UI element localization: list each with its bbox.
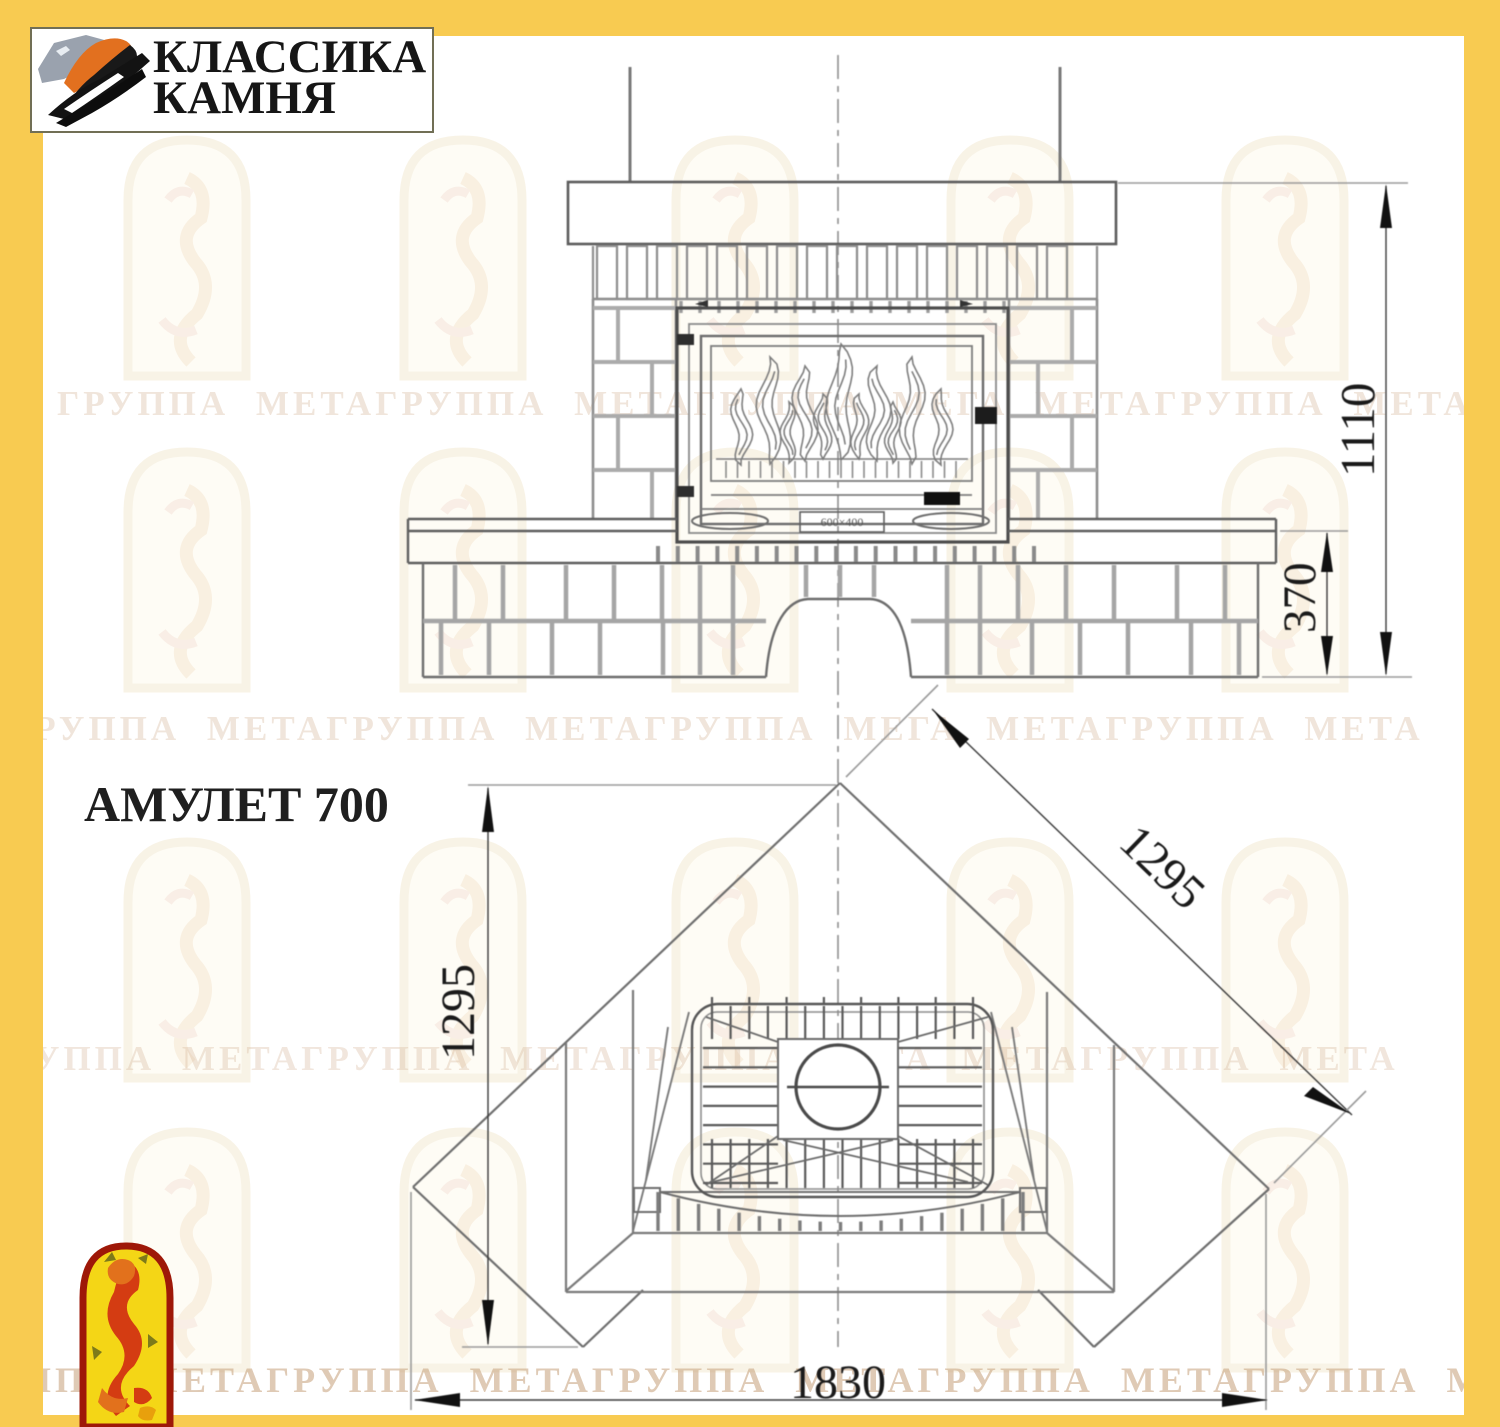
svg-text:1110: 1110	[1330, 383, 1385, 477]
svg-text:1295: 1295	[1109, 815, 1215, 920]
svg-text:1830: 1830	[790, 1356, 886, 1409]
svg-text:370: 370	[1274, 563, 1326, 634]
svg-text:600×400: 600×400	[821, 515, 864, 529]
svg-text:1295: 1295	[432, 964, 485, 1060]
